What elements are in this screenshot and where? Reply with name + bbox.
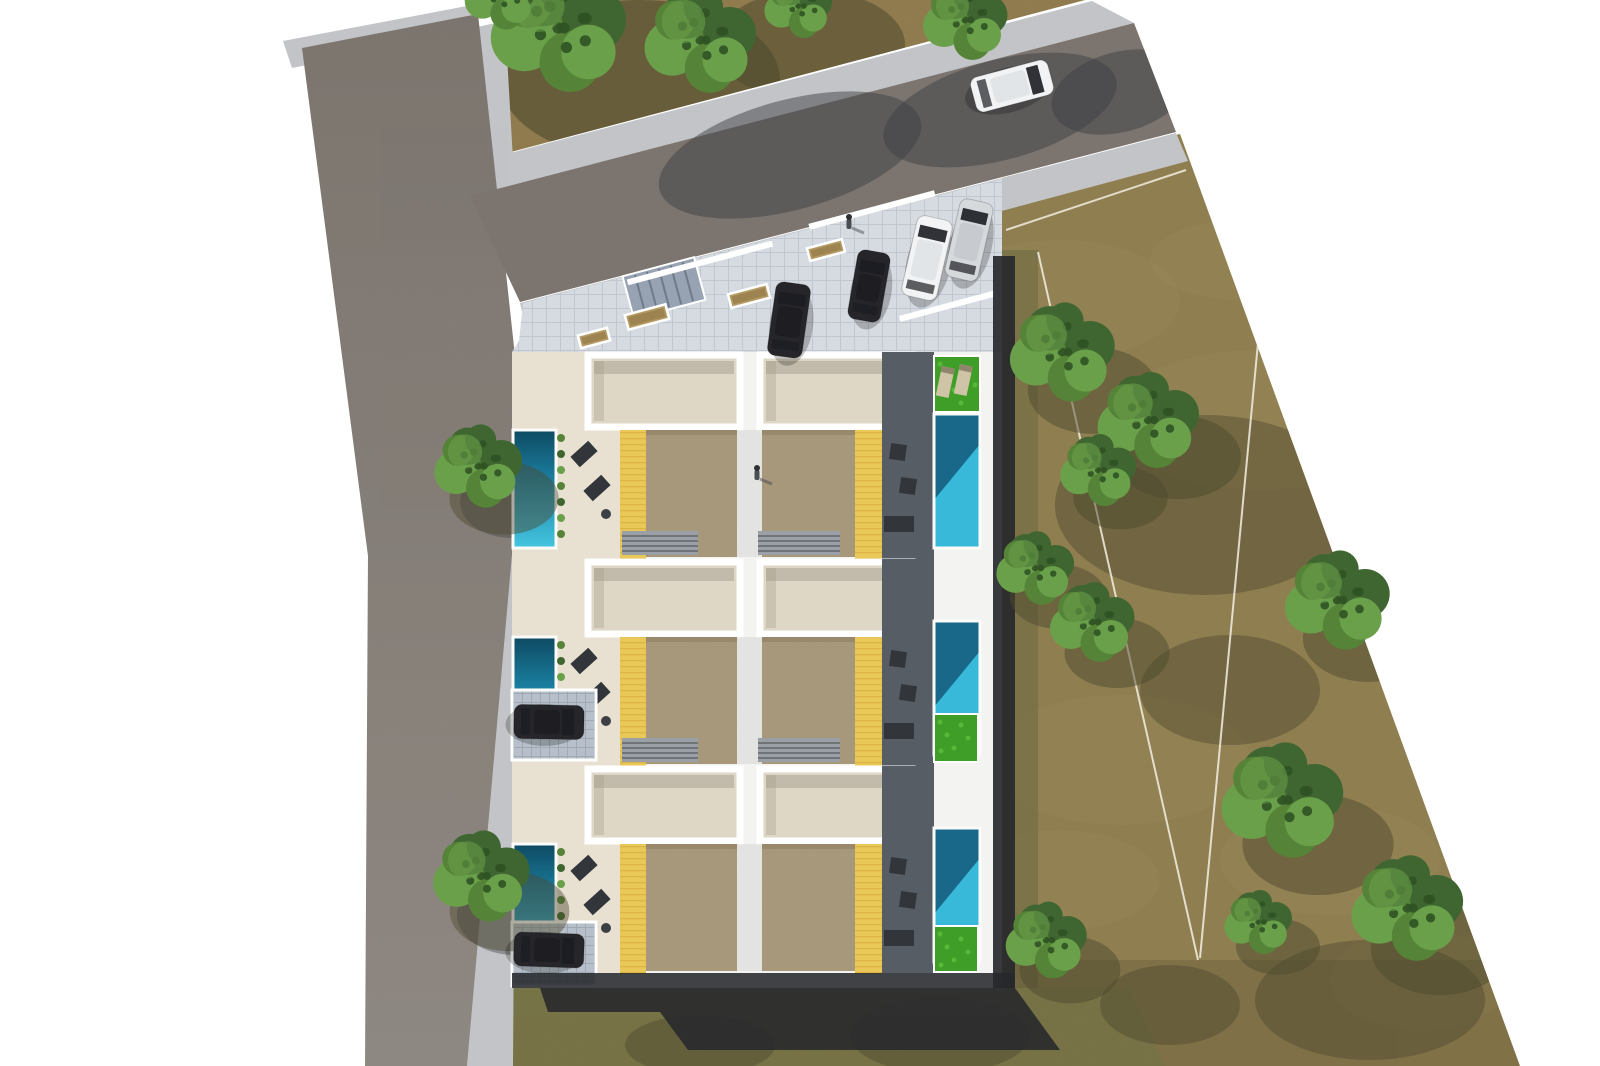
townhouse-block [512,352,993,986]
site-plan-rendering [0,0,1600,1066]
aerial-site-plan [0,0,1600,1066]
